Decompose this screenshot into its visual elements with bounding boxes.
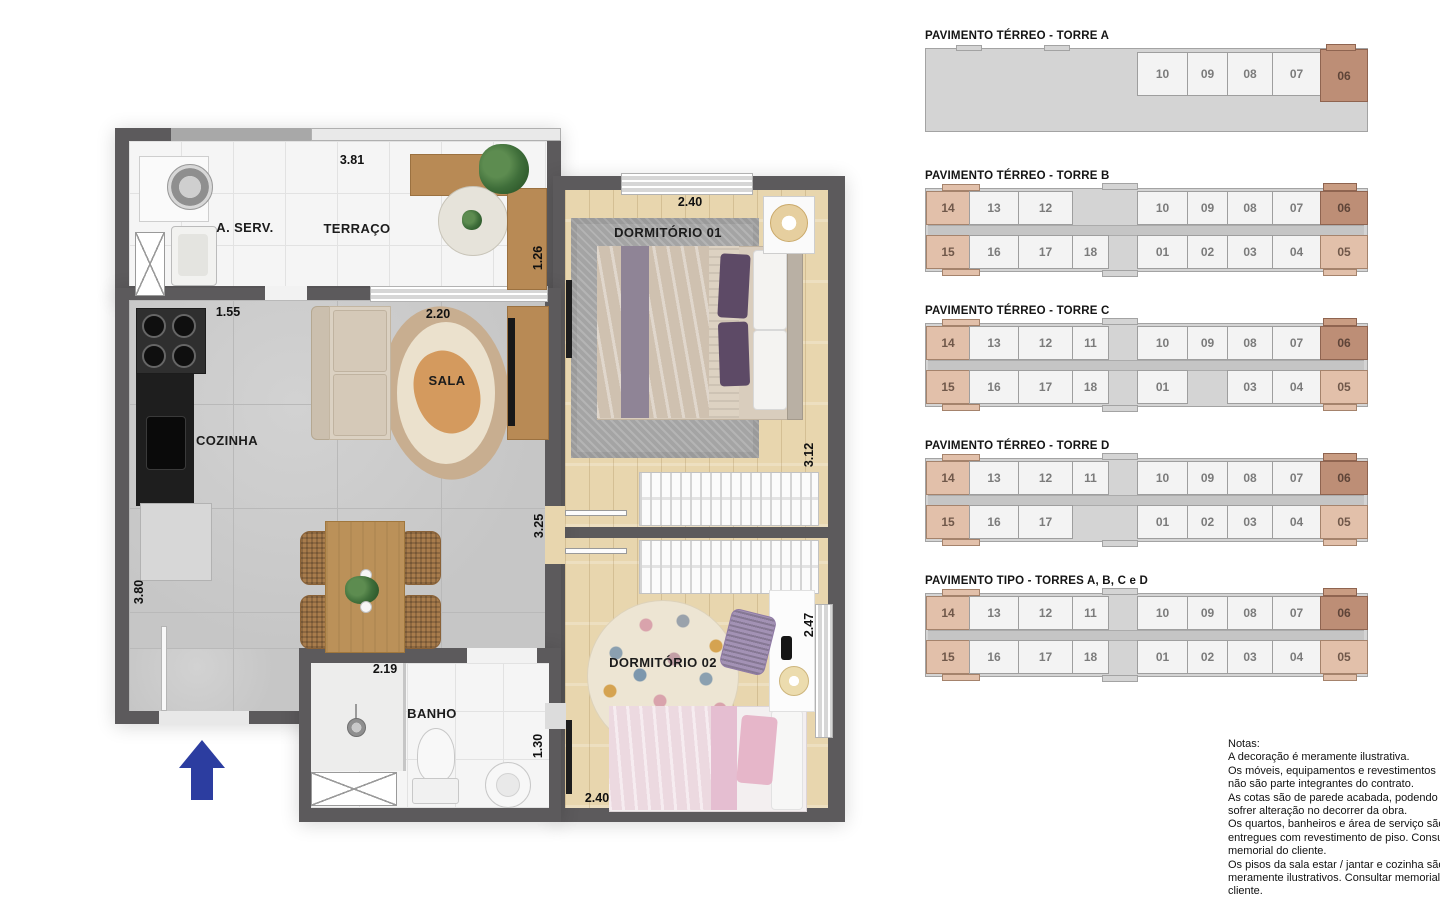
unit-14: 14 — [926, 596, 970, 630]
terrace-parapet — [171, 128, 311, 141]
unit-08: 08 — [1227, 326, 1273, 360]
bed-blanket — [597, 246, 709, 418]
white-pillow — [753, 250, 787, 330]
building-bump — [1044, 45, 1070, 51]
unit-04: 04 — [1272, 370, 1321, 404]
bedroom2-door-leaf — [565, 548, 627, 554]
bath-vent-window — [545, 703, 566, 729]
bath-sink-basin — [496, 773, 520, 797]
unit-15: 15 — [926, 640, 970, 674]
keyplan-building: 1413121110090807061516170102030405 — [925, 458, 1368, 542]
unit-08: 08 — [1227, 596, 1273, 630]
unit-07: 07 — [1272, 461, 1321, 495]
unit-14: 14 — [926, 461, 970, 495]
note-line: memorial do cliente. — [1228, 845, 1440, 858]
unit-04: 04 — [1272, 640, 1321, 674]
terrace-plant — [479, 144, 529, 194]
terrace-railing — [311, 128, 561, 141]
keyplan-building: 1009080706 — [925, 48, 1368, 132]
unit-15: 15 — [926, 370, 970, 404]
building-bump — [1323, 404, 1357, 411]
keyplan-title: PAVIMENTO TÉRREO - TORRE D — [925, 440, 1385, 452]
unit-07: 07 — [1272, 52, 1321, 96]
unit-11: 11 — [1072, 326, 1109, 360]
room-label-dormitorio-01: DORMITÓRIO 01 — [583, 225, 753, 240]
keyplan-building: 141312111009080706151617180102030405 — [925, 593, 1368, 677]
keyplan-title: PAVIMENTO TÉRREO - TORRE C — [925, 305, 1385, 317]
note-line: A decoração é meramente ilustrativa. — [1228, 751, 1440, 764]
unit-07: 07 — [1272, 326, 1321, 360]
key-plans: PAVIMENTO TÉRREO - TORRE A1009080706PAVI… — [925, 0, 1395, 700]
building-bump — [942, 589, 980, 596]
utility-shaft — [135, 232, 165, 296]
dim-cozinha-depth: 3.80 — [132, 562, 146, 622]
pink-pillow — [736, 715, 778, 786]
unit-08: 08 — [1227, 191, 1273, 225]
entry-arrow-icon — [179, 740, 225, 768]
building-bump — [1323, 269, 1357, 276]
unit-01: 01 — [1137, 640, 1188, 674]
unit-09: 09 — [1187, 326, 1228, 360]
building-bump — [942, 539, 980, 546]
dim-sala-depth: 3.25 — [532, 496, 546, 556]
keyplan-title: PAVIMENTO TIPO - TORRES A, B, C e D — [925, 575, 1385, 587]
unit-13: 13 — [969, 461, 1019, 495]
building-bump — [1323, 453, 1357, 461]
unit-10: 10 — [1137, 326, 1188, 360]
unit-18: 18 — [1072, 640, 1109, 674]
unit-08: 08 — [1227, 52, 1273, 96]
unit-01: 01 — [1137, 505, 1188, 539]
dim-terraco-depth: 1.26 — [531, 228, 545, 288]
room-label-terraco: TERRAÇO — [272, 221, 442, 236]
unit-18: 18 — [1072, 235, 1109, 269]
unit-12: 12 — [1018, 461, 1073, 495]
unit-10: 10 — [1137, 191, 1188, 225]
unit-03: 03 — [1227, 640, 1273, 674]
keyplan-tower: PAVIMENTO TÉRREO - TORRE D14131211100908… — [925, 440, 1385, 542]
bath-shaft — [311, 772, 397, 806]
wardrobe — [639, 472, 819, 526]
unit-16: 16 — [969, 235, 1019, 269]
keyplan-tower: PAVIMENTO TÉRREO - TORRE C14131211100908… — [925, 305, 1385, 407]
building-bump — [1102, 318, 1138, 325]
floor-entry — [129, 648, 299, 711]
bedroom1-window — [621, 173, 753, 195]
bedroom-doors-opening — [545, 506, 565, 564]
keyplan-tower: PAVIMENTO TÉRREO - TORRE B14131210090807… — [925, 170, 1385, 272]
unit-05: 05 — [1320, 235, 1368, 269]
toilet-tank — [412, 778, 459, 804]
building-bump — [1102, 270, 1138, 277]
table-plant — [462, 210, 482, 230]
floor-plan: A. SERV. TERRAÇO DORMITÓRIO 01 SALA COZI… — [115, 128, 847, 828]
white-pillow — [753, 330, 787, 410]
building-bump — [942, 269, 980, 276]
burner-icon — [142, 344, 166, 368]
dim-cozinha-width: 1.55 — [198, 305, 258, 319]
purple-pillow — [717, 253, 750, 318]
unit-05: 05 — [1320, 370, 1368, 404]
unit-01: 01 — [1137, 235, 1188, 269]
unit-10: 10 — [1137, 52, 1188, 96]
unit-14: 14 — [926, 326, 970, 360]
room-label-cozinha: COZINHA — [142, 433, 312, 448]
unit-07: 07 — [1272, 596, 1321, 630]
wardrobe — [639, 540, 819, 594]
table-lamp — [770, 204, 808, 242]
headboard — [787, 246, 803, 420]
unit-12: 12 — [1018, 596, 1073, 630]
bath-door-opening — [467, 648, 537, 663]
building-bump — [956, 45, 982, 51]
unit-07: 07 — [1272, 191, 1321, 225]
building-bump — [1323, 183, 1357, 191]
unit-13: 13 — [969, 191, 1019, 225]
keyplan-title: PAVIMENTO TÉRREO - TORRE A — [925, 30, 1385, 42]
room-label-banho: BANHO — [347, 706, 517, 721]
dim-banho-width: 2.19 — [355, 662, 415, 676]
unit-06: 06 — [1320, 461, 1368, 495]
building-bump — [1323, 318, 1357, 326]
entry-door-opening — [159, 711, 249, 724]
dining-plant — [345, 576, 379, 604]
unit-02: 02 — [1187, 505, 1228, 539]
note-line: entregues com revestimento de piso. Cons… — [1228, 832, 1440, 845]
building-bump — [1323, 588, 1357, 596]
dining-chair — [399, 595, 441, 649]
note-line: sofrer alteração no decorrer da obra. — [1228, 805, 1440, 818]
toilet-bowl — [417, 728, 455, 782]
entry-door-leaf — [161, 626, 167, 711]
unit-04: 04 — [1272, 505, 1321, 539]
keyplan-building: 1413121009080706151617180102030405 — [925, 188, 1368, 272]
building-bump — [1326, 44, 1356, 51]
unit-01: 01 — [1137, 370, 1188, 404]
room-label-dormitorio-02: DORMITÓRIO 02 — [578, 655, 748, 670]
unit-03: 03 — [1227, 505, 1273, 539]
desk-lamp — [779, 666, 809, 696]
unit-04: 04 — [1272, 235, 1321, 269]
dim-terraco-width: 3.81 — [322, 153, 382, 167]
building-bump — [942, 404, 980, 411]
unit-05: 05 — [1320, 505, 1368, 539]
tv — [508, 318, 515, 426]
note-line: meramente ilustrativos. Consultar memori… — [1228, 872, 1440, 885]
unit-15: 15 — [926, 505, 970, 539]
building-bump — [1323, 539, 1357, 546]
unit-10: 10 — [1137, 461, 1188, 495]
keyplan-building: 1413121110090807061516171801030405 — [925, 323, 1368, 407]
unit-06: 06 — [1320, 326, 1368, 360]
building-bump — [1102, 453, 1138, 460]
unit-09: 09 — [1187, 461, 1228, 495]
sofa-cushion — [333, 310, 387, 372]
building-bump — [942, 184, 980, 191]
unit-06: 06 — [1320, 596, 1368, 630]
keyplan-title: PAVIMENTO TÉRREO - TORRE B — [925, 170, 1385, 182]
unit-06: 06 — [1320, 191, 1368, 225]
note-line: Os quartos, banheiros e área de serviço … — [1228, 818, 1440, 831]
unit-03: 03 — [1227, 370, 1273, 404]
washer-drum — [167, 164, 213, 210]
building-bump — [942, 454, 980, 461]
dim-dorm1-width: 2.40 — [660, 195, 720, 209]
unit-05: 05 — [1320, 640, 1368, 674]
dim-dorm2-depth: 2.47 — [802, 595, 816, 655]
unit-11: 11 — [1072, 596, 1109, 630]
dim-sala-width: 2.20 — [408, 307, 468, 321]
phone — [781, 636, 792, 660]
unit-17: 17 — [1018, 370, 1073, 404]
note-line: cliente. — [1228, 885, 1440, 898]
laundry-tank-basin — [178, 234, 208, 276]
unit-16: 16 — [969, 370, 1019, 404]
building-bump — [1102, 540, 1138, 547]
keyplan-tower: PAVIMENTO TÉRREO - TORRE A1009080706 — [925, 30, 1385, 132]
unit-13: 13 — [969, 326, 1019, 360]
unit-17: 17 — [1018, 505, 1073, 539]
bedroom1-door-leaf — [565, 510, 627, 516]
building-bump — [1102, 588, 1138, 595]
unit-09: 09 — [1187, 191, 1228, 225]
unit-18: 18 — [1072, 370, 1109, 404]
unit-11: 11 — [1072, 461, 1109, 495]
dining-chair — [399, 531, 441, 585]
service-door-opening — [265, 286, 307, 300]
unit-15: 15 — [926, 235, 970, 269]
unit-17: 17 — [1018, 640, 1073, 674]
unit-03: 03 — [1227, 235, 1273, 269]
dim-banho-depth: 1.30 — [531, 716, 545, 776]
fridge — [140, 503, 212, 581]
bed-runner — [621, 246, 649, 418]
dim-dorm2-width: 2.40 — [567, 791, 627, 805]
unit-12: 12 — [1018, 326, 1073, 360]
burner-icon — [142, 314, 166, 338]
building-bump — [942, 674, 980, 681]
unit-12: 12 — [1018, 191, 1073, 225]
note-line: Os móveis, equipamentos e revestimentos — [1228, 765, 1440, 778]
notes: Notas:A decoração é meramente ilustrativ… — [1228, 738, 1440, 899]
keyplan-tower: PAVIMENTO TIPO - TORRES A, B, C e D14131… — [925, 575, 1385, 677]
unit-02: 02 — [1187, 235, 1228, 269]
unit-08: 08 — [1227, 461, 1273, 495]
note-line: Os pisos da sala estar / jantar e cozinh… — [1228, 859, 1440, 872]
bed2-fold — [711, 706, 737, 810]
unit-16: 16 — [969, 640, 1019, 674]
note-line: Notas: — [1228, 738, 1440, 751]
unit-13: 13 — [969, 596, 1019, 630]
unit-14: 14 — [926, 191, 970, 225]
burner-icon — [172, 344, 196, 368]
wall-tv — [566, 280, 572, 358]
room-label-sala: SALA — [362, 373, 532, 388]
brochure-page: A. SERV. TERRAÇO DORMITÓRIO 01 SALA COZI… — [0, 0, 1440, 900]
note-line: não são parte integrantes do contrato. — [1228, 778, 1440, 791]
bedroom2-window — [815, 604, 833, 738]
unit-16: 16 — [969, 505, 1019, 539]
entry-arrow-shaft — [191, 767, 213, 800]
unit-09: 09 — [1187, 52, 1228, 96]
building-bump — [942, 319, 980, 326]
unit-09: 09 — [1187, 596, 1228, 630]
building-bump — [1102, 405, 1138, 412]
dim-dorm1-depth: 3.12 — [802, 425, 816, 485]
wall-tv — [566, 720, 572, 794]
unit-17: 17 — [1018, 235, 1073, 269]
building-bump — [1323, 674, 1357, 681]
building-bump — [1102, 183, 1138, 190]
purple-pillow — [718, 321, 750, 386]
unit-06: 06 — [1320, 49, 1368, 102]
unit-10: 10 — [1137, 596, 1188, 630]
burner-icon — [172, 314, 196, 338]
building-bump — [1102, 675, 1138, 682]
note-line: As cotas são de parede acabada, podendo — [1228, 792, 1440, 805]
pendant-light — [360, 601, 372, 613]
unit-02: 02 — [1187, 640, 1228, 674]
